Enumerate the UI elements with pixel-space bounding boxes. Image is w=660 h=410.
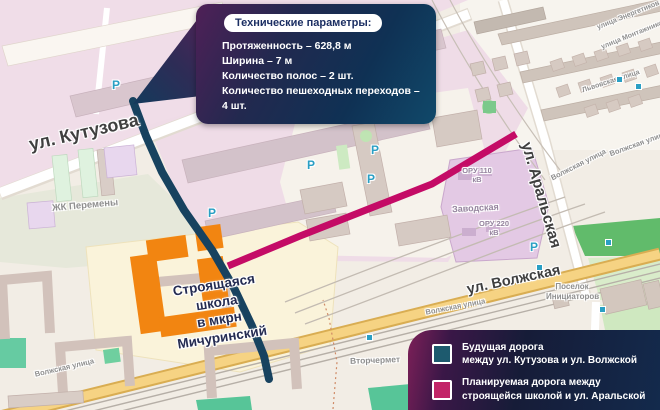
legend-swatch-planned-road bbox=[432, 380, 452, 400]
tech-params-line-length: Протяженность – 628,8 м bbox=[222, 39, 424, 54]
parking-icon: P bbox=[367, 172, 375, 186]
legend-item-planned-road: Планируемая дорога между строящейся школ… bbox=[432, 376, 652, 402]
transit-stop-icon bbox=[536, 264, 543, 271]
tech-params-line-width: Ширина – 7 м bbox=[222, 54, 424, 69]
legend-label-planned-road: Планируемая дорога между строящейся школ… bbox=[462, 376, 645, 402]
place-label-poselok-iniciatorov: Поселок Инициаторов bbox=[546, 282, 598, 302]
transit-stop-icon bbox=[635, 83, 642, 90]
transit-stop-icon bbox=[366, 334, 373, 341]
legend-panel: Будущая дорога между ул. Кутузова и ул. … bbox=[408, 330, 660, 410]
label-oru-220: ОРУ 220 кВ bbox=[476, 219, 512, 237]
tech-params-line-lanes: Количество полос – 2 шт. bbox=[222, 69, 424, 84]
legend-label-future-road: Будущая дорога между ул. Кутузова и ул. … bbox=[462, 341, 637, 367]
legend-item-future-road: Будущая дорога между ул. Кутузова и ул. … bbox=[432, 341, 652, 367]
parking-icon: P bbox=[307, 158, 315, 172]
tech-params-panel: Технические параметры: Протяженность – 6… bbox=[196, 4, 436, 124]
transit-stop-icon bbox=[605, 239, 612, 246]
legend-swatch-future-road bbox=[432, 344, 452, 364]
parking-icon: P bbox=[208, 206, 216, 220]
tech-params-title: Технические параметры: bbox=[224, 14, 382, 32]
label-oru-110: ОРУ 110 кВ bbox=[459, 166, 495, 184]
transit-stop-icon bbox=[616, 76, 623, 83]
tech-params-line-crossings: Количество пешеходных переходов – 4 шт. bbox=[222, 84, 424, 114]
parking-icon: P bbox=[530, 240, 538, 254]
transit-stop-icon bbox=[599, 306, 606, 313]
parking-icon: P bbox=[371, 143, 379, 157]
parking-icon: P bbox=[112, 78, 120, 92]
tech-params-list: Протяженность – 628,8 м Ширина – 7 м Кол… bbox=[222, 39, 424, 114]
map-screenshot: ул. Кутузова ул. Аральская ул. Волжская … bbox=[0, 0, 660, 410]
place-label-vtorchermet: Вторчермет bbox=[350, 354, 400, 366]
